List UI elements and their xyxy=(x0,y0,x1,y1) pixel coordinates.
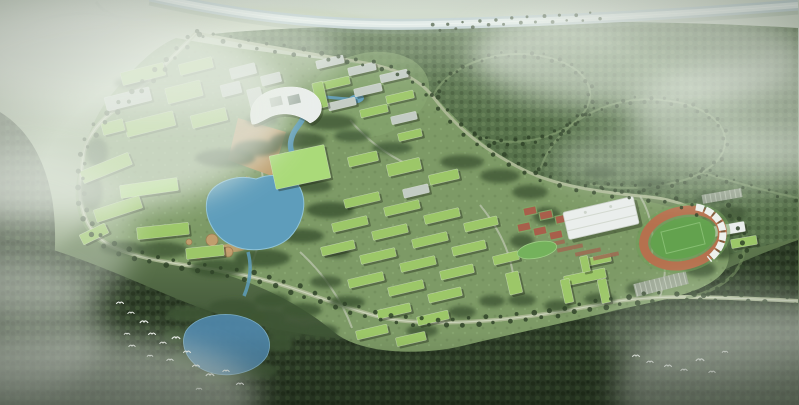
scene-canvas xyxy=(0,0,799,405)
vignette xyxy=(0,0,799,405)
campus-aerial-rendering xyxy=(0,0,799,405)
